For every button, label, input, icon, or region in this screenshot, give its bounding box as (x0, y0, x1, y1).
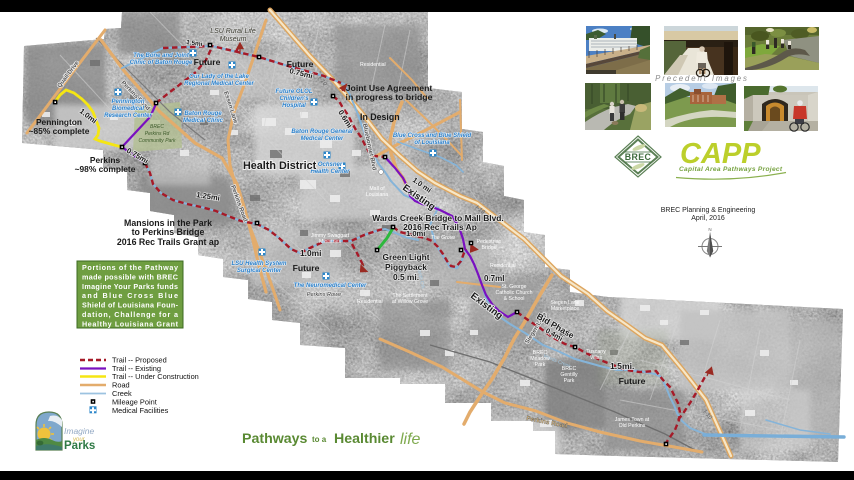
svg-text:1.0mi: 1.0mi (300, 248, 321, 258)
svg-text:Louisiana: Louisiana (366, 192, 388, 198)
svg-text:Our Lady of the Lake: Our Lady of the Lake (189, 74, 249, 80)
svg-text:The Bone and Joint: The Bone and Joint (133, 53, 190, 59)
svg-text:Healthy Louisiana Grant: Healthy Louisiana Grant (82, 319, 179, 328)
svg-text:Piggyback: Piggyback (385, 262, 427, 272)
svg-text:Residential: Residential (357, 299, 383, 305)
svg-text:The Neuromedical Center: The Neuromedical Center (294, 283, 367, 289)
svg-text:Capital Area Pathways Project: Capital Area Pathways Project (679, 166, 783, 173)
svg-text:Future: Future (293, 263, 320, 273)
svg-text:Precedent Images: Precedent Images (655, 74, 749, 83)
svg-text:Shield of Louisiana Foun-: Shield of Louisiana Foun- (82, 301, 179, 310)
svg-text:Future: Future (619, 376, 646, 386)
svg-text:Pennington: Pennington (112, 99, 145, 105)
svg-text:life: life (400, 431, 421, 448)
svg-text:Pathways: Pathways (242, 431, 308, 447)
svg-text:Blue Cross and Blue Shield: Blue Cross and Blue Shield (393, 133, 472, 139)
svg-text:Baton Rouge: Baton Rouge (184, 111, 222, 117)
svg-text:Portions of the Pathway: Portions of the Pathway (82, 263, 178, 272)
svg-text:at Willow Grove: at Willow Grove (392, 299, 428, 305)
svg-text:April, 2016: April, 2016 (691, 215, 725, 222)
svg-text:BREC: BREC (625, 152, 652, 162)
svg-text:Residential: Residential (490, 263, 516, 269)
svg-text:LSU Rural Life: LSU Rural Life (210, 28, 256, 35)
svg-text:made possible with BREC: made possible with BREC (82, 272, 178, 281)
svg-text:Imagine: Imagine (64, 426, 95, 436)
svg-text:& School: & School (504, 296, 525, 302)
svg-text:Marketplace: Marketplace (551, 306, 579, 312)
svg-text:Children's: Children's (279, 96, 309, 102)
svg-text:0.5 mi.: 0.5 mi. (393, 272, 419, 282)
svg-text:Surgical Center: Surgical Center (237, 268, 282, 274)
svg-text:Residential: Residential (360, 62, 386, 68)
svg-text:Hospital: Hospital (282, 103, 306, 109)
svg-text:Clinic of Baton Rouge: Clinic of Baton Rouge (130, 60, 193, 66)
svg-text:~85% complete: ~85% complete (29, 126, 90, 136)
svg-text:Park: Park (564, 378, 575, 384)
svg-text:Healthier: Healthier (334, 431, 395, 447)
svg-text:Future OLOL: Future OLOL (276, 89, 313, 95)
svg-text:Green Light: Green Light (383, 252, 430, 262)
svg-text:BREC Planning & Engineering: BREC Planning & Engineering (661, 207, 756, 214)
svg-text:Medical Facilities: Medical Facilities (112, 406, 169, 415)
svg-text:LSU Health System: LSU Health System (231, 261, 287, 267)
svg-text:Medical Center: Medical Center (301, 136, 344, 142)
svg-text:Perkins Rd: Perkins Rd (145, 131, 170, 137)
svg-text:to Perkins Bridge: to Perkins Bridge (132, 227, 205, 237)
svg-text:2016 Rec Trails Grant ap: 2016 Rec Trails Grant ap (117, 237, 220, 247)
svg-text:Biomedical: Biomedical (112, 106, 144, 112)
svg-text:Old Perkins: Old Perkins (619, 423, 646, 429)
svg-text:Health Center: Health Center (310, 169, 350, 175)
svg-text:Ochsner: Ochsner (318, 162, 343, 168)
svg-text:Health District: Health District (243, 160, 317, 172)
svg-text:~98% complete: ~98% complete (75, 164, 136, 174)
svg-text:Community Park: Community Park (139, 138, 176, 144)
svg-text:Perkins Rowe: Perkins Rowe (307, 292, 342, 298)
svg-text:Park: Park (535, 362, 546, 368)
svg-text:N: N (708, 227, 711, 232)
svg-text:Research Center: Research Center (104, 113, 152, 119)
svg-text:Regional Medical Center: Regional Medical Center (184, 81, 254, 87)
svg-text:in progress to bridge: in progress to bridge (346, 92, 433, 102)
svg-text:0.7ml: 0.7ml (484, 274, 504, 283)
svg-text:The Grove: The Grove (431, 235, 456, 241)
svg-text:Ministries: Ministries (319, 239, 341, 245)
svg-text:Medical Clinic: Medical Clinic (183, 118, 224, 124)
svg-text:Parks: Parks (64, 440, 95, 452)
svg-text:Imagine Your Parks funds: Imagine Your Parks funds (82, 282, 178, 291)
svg-text:BREC: BREC (150, 124, 164, 130)
svg-text:Future: Future (194, 57, 221, 67)
svg-text:Villas: Villas (590, 355, 603, 361)
svg-text:Baton Rouge General: Baton Rouge General (291, 129, 353, 135)
svg-text:dation, Challenge for a: dation, Challenge for a (82, 310, 179, 319)
svg-text:1.5mi.: 1.5mi. (610, 361, 634, 371)
svg-text:Museum: Museum (220, 36, 247, 43)
svg-text:to a: to a (312, 435, 327, 444)
svg-text:In Design: In Design (360, 112, 400, 122)
svg-text:Bridge: Bridge (482, 245, 497, 251)
svg-text:1.0mi: 1.0mi (406, 229, 425, 238)
svg-text:of Louisiana: of Louisiana (414, 140, 450, 146)
